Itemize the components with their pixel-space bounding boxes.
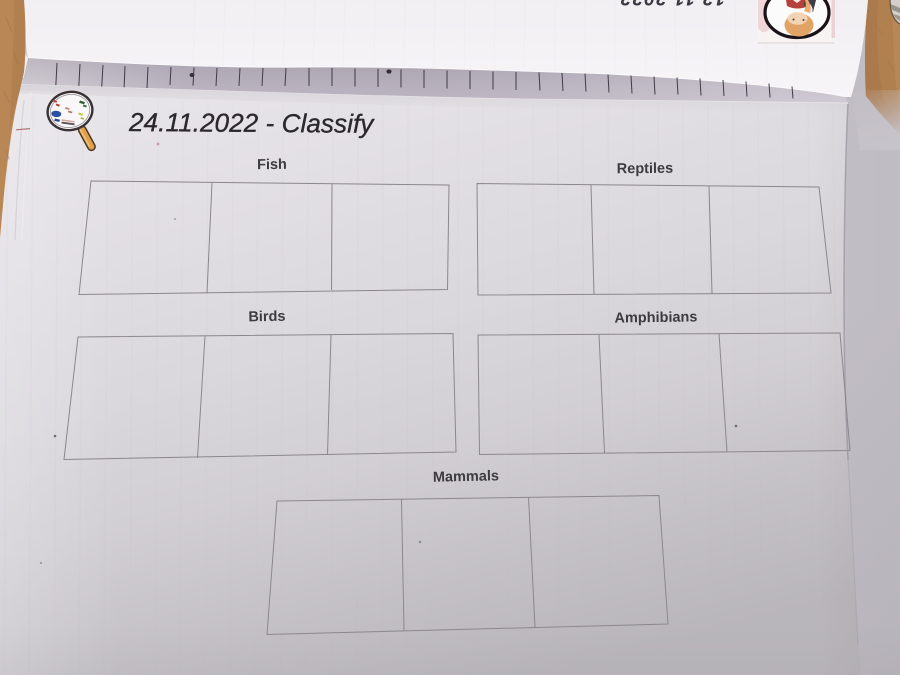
svg-text:Reptiles: Reptiles — [617, 161, 674, 178]
svg-text:Amphibians: Amphibians — [614, 309, 697, 326]
svg-text:Fish: Fish — [257, 157, 287, 173]
svg-text:Mammals: Mammals — [433, 468, 499, 485]
svg-text:24.11.2022 - Classify: 24.11.2022 - Classify — [128, 107, 376, 139]
svg-text:12.11.2022: 12.11.2022 — [620, 0, 726, 8]
svg-text:Birds: Birds — [248, 309, 285, 326]
